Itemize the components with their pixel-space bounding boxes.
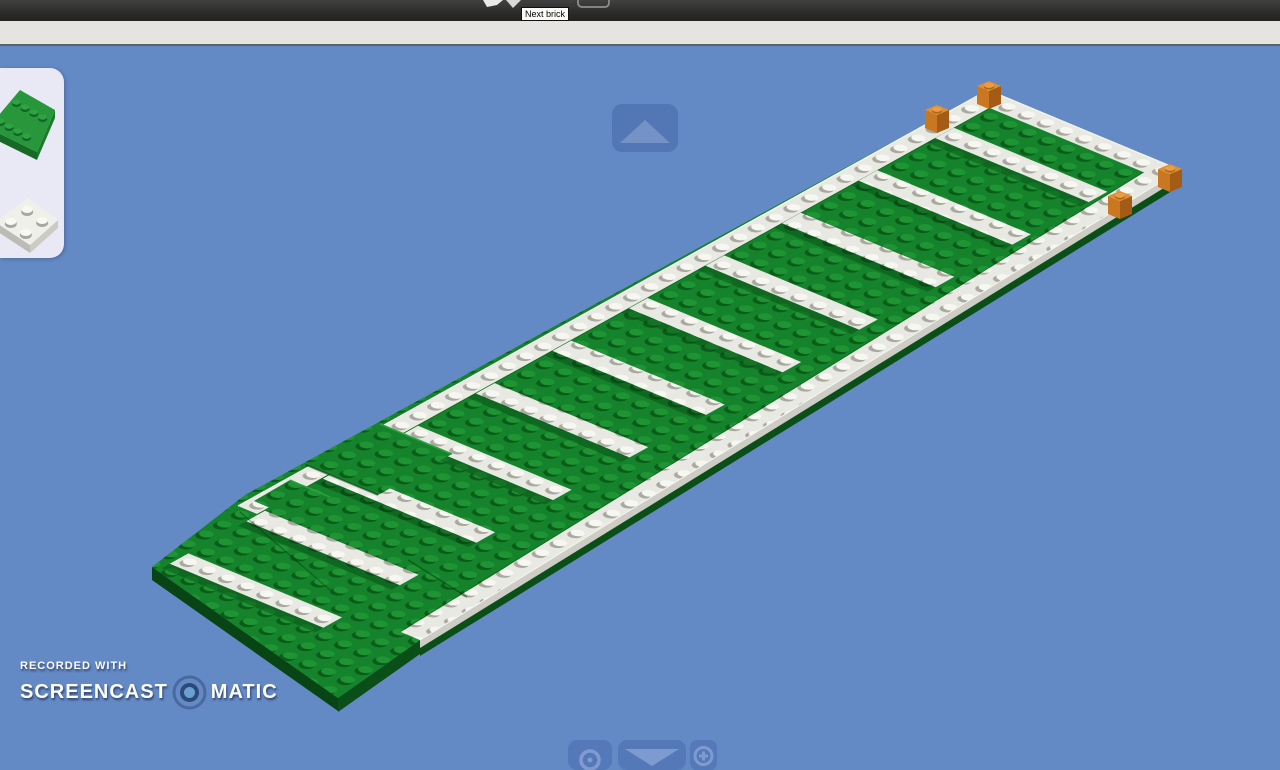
zoom-in-button[interactable] — [690, 740, 717, 770]
brick-palette-panel — [0, 68, 64, 258]
brick-counter-outline[interactable] — [578, 0, 609, 7]
app-window: { "toolbar": { "tooltip_text": "Next bri… — [0, 0, 1280, 720]
rotate-down-button[interactable] — [618, 740, 686, 770]
rotate-up-button[interactable] — [612, 104, 678, 152]
forward-arrow-icon[interactable] — [506, 0, 521, 8]
back-arrow-icon[interactable] — [483, 0, 503, 7]
screencast-logo — [171, 674, 208, 711]
3d-viewport[interactable] — [0, 46, 1280, 720]
tooltip: Next brick — [521, 7, 569, 21]
screenshot-button[interactable] — [568, 740, 612, 770]
watermark-recorded-with: RECORDED WITH — [20, 660, 278, 672]
plus-icon — [690, 740, 717, 770]
watermark: RECORDED WITH SCREENCAST MATIC — [20, 660, 278, 711]
watermark-brand-right: MATIC — [211, 681, 278, 704]
top-toolbar-icons — [0, 0, 1280, 25]
watermark-brand-left: SCREENCAST — [20, 681, 168, 704]
camera-icon — [568, 740, 612, 770]
palette-item-white-plate[interactable] — [0, 198, 58, 253]
palette-item-green-plate[interactable] — [0, 90, 55, 160]
palette-thumbnails — [0, 68, 64, 258]
up-arrow-icon — [620, 120, 670, 143]
down-arrow-icon — [618, 740, 686, 770]
